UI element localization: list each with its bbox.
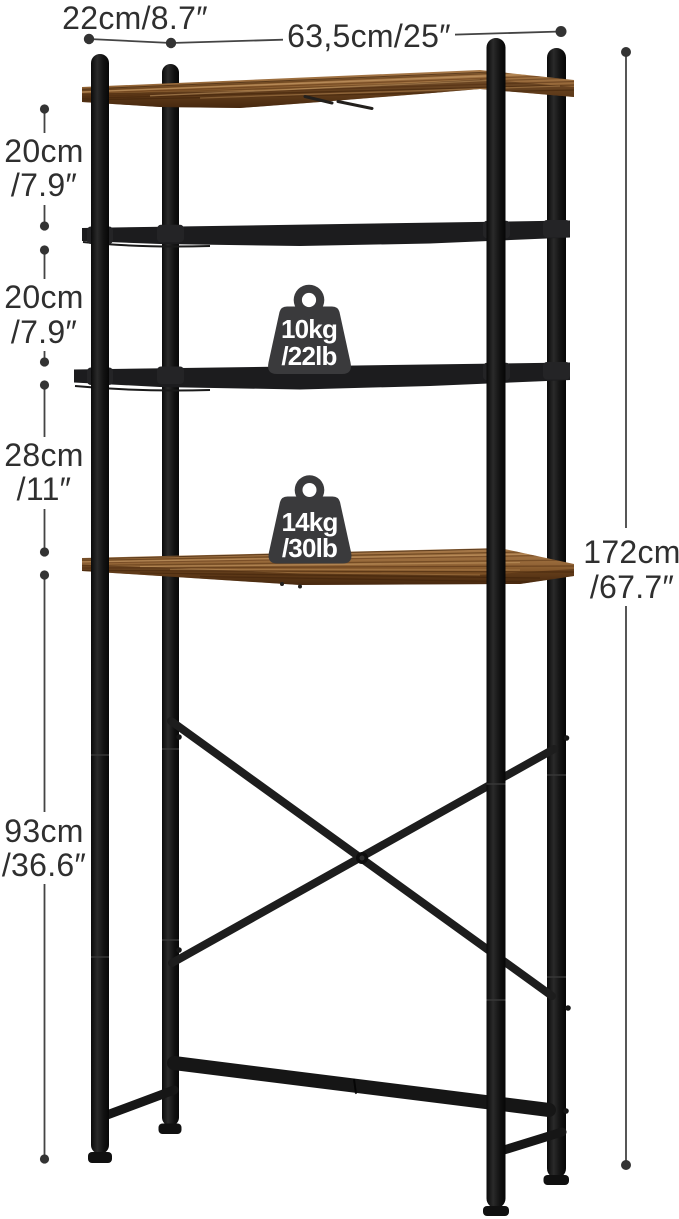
- svg-text:22cm/8.7″: 22cm/8.7″: [62, 0, 208, 36]
- svg-text:/11″: /11″: [17, 471, 72, 507]
- svg-text:63,5cm/25″: 63,5cm/25″: [287, 18, 451, 54]
- svg-text:/7.9″: /7.9″: [11, 167, 77, 203]
- svg-text:20cm: 20cm: [4, 279, 83, 315]
- svg-text:28cm: 28cm: [4, 437, 83, 473]
- svg-text:172cm: 172cm: [583, 534, 679, 570]
- svg-text:/36.6″: /36.6″: [2, 847, 86, 883]
- svg-text:10kg: 10kg: [281, 314, 337, 344]
- svg-text:/22lb: /22lb: [281, 341, 336, 371]
- svg-text:/7.9″: /7.9″: [11, 314, 77, 350]
- svg-text:/67.7″: /67.7″: [590, 569, 674, 605]
- svg-text:/30lb: /30lb: [282, 533, 337, 563]
- svg-text:20cm: 20cm: [4, 133, 83, 169]
- svg-text:93cm: 93cm: [4, 813, 83, 849]
